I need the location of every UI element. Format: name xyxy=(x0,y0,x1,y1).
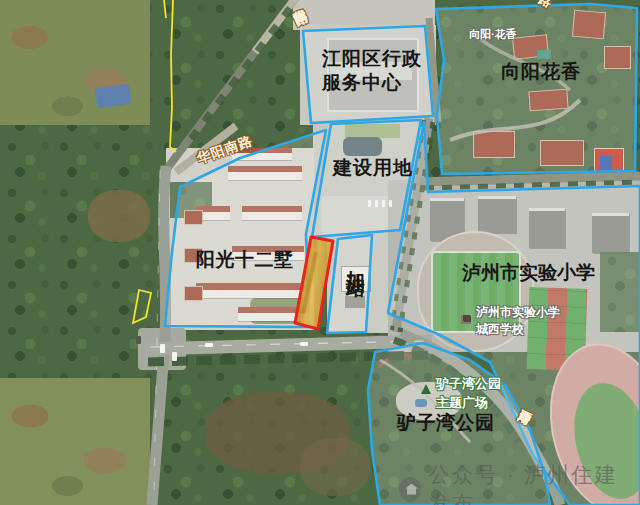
satellite-map: 江阳区行政 服务中心 向阳花香 建设用地 阳光十二墅 加油站 泸州市实验小学 驴… xyxy=(0,0,640,505)
label-experimental-school: 泸州市实验小学 xyxy=(462,261,595,285)
boundary-gas-station xyxy=(327,235,372,333)
label-construction-land: 建设用地 xyxy=(333,156,413,180)
watermark-text: 公众号 · 泸州住建发布 xyxy=(428,460,640,505)
poi-school-west-campus: 泸州市实验小学 城西学校 xyxy=(476,304,560,338)
poi-park-theme-plaza: 驴子湾公园 主题广场 xyxy=(436,374,501,412)
road-left-vertical xyxy=(152,166,166,505)
watermark: 公众号 · 泸州住建发布 xyxy=(399,460,640,505)
label-luzi-bay-park: 驴子湾公园 xyxy=(397,411,495,435)
label-sunshine-villas: 阳光十二墅 xyxy=(196,248,294,272)
watermark-logo-icon xyxy=(399,477,421,502)
label-gas-station: 加油站 xyxy=(344,254,368,266)
label-xiangyang-huaxiang: 向阳花香 xyxy=(501,60,581,84)
poi-xiangyang-huaxiang: 向阳·花香 xyxy=(469,26,517,43)
school-poi-icon xyxy=(461,315,471,324)
boundary-xiangyang-huaxiang xyxy=(436,4,637,174)
label-admin-center: 江阳区行政 服务中心 xyxy=(322,47,422,94)
survey-polygon-small xyxy=(133,290,151,323)
tree-icon xyxy=(421,384,431,394)
road-horizontal xyxy=(145,341,432,349)
survey-line-left xyxy=(170,0,176,152)
survey-line-left-short xyxy=(164,0,166,18)
